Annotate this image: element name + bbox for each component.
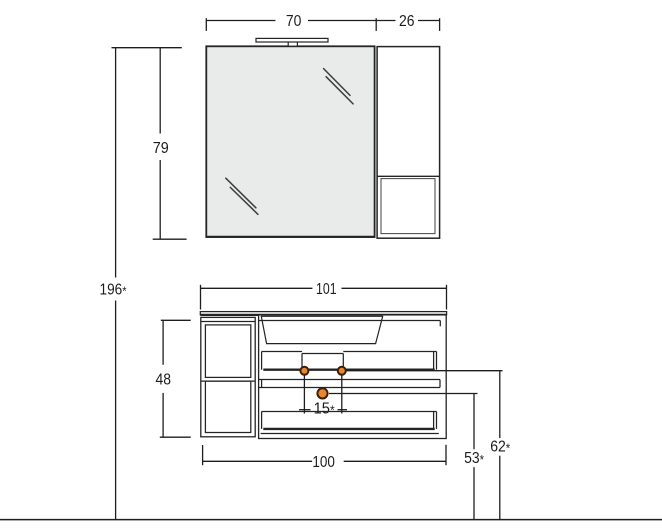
svg-text:79: 79 — [153, 140, 169, 157]
svg-text:70: 70 — [286, 13, 302, 30]
svg-text:26: 26 — [399, 13, 415, 30]
svg-text:15*: 15* — [314, 401, 335, 418]
svg-text:48: 48 — [155, 371, 171, 388]
svg-text:53*: 53* — [464, 450, 484, 467]
svg-text:62*: 62* — [490, 438, 510, 455]
svg-text:196*: 196* — [100, 282, 127, 299]
svg-text:100: 100 — [312, 454, 335, 471]
svg-text:101: 101 — [316, 281, 337, 298]
